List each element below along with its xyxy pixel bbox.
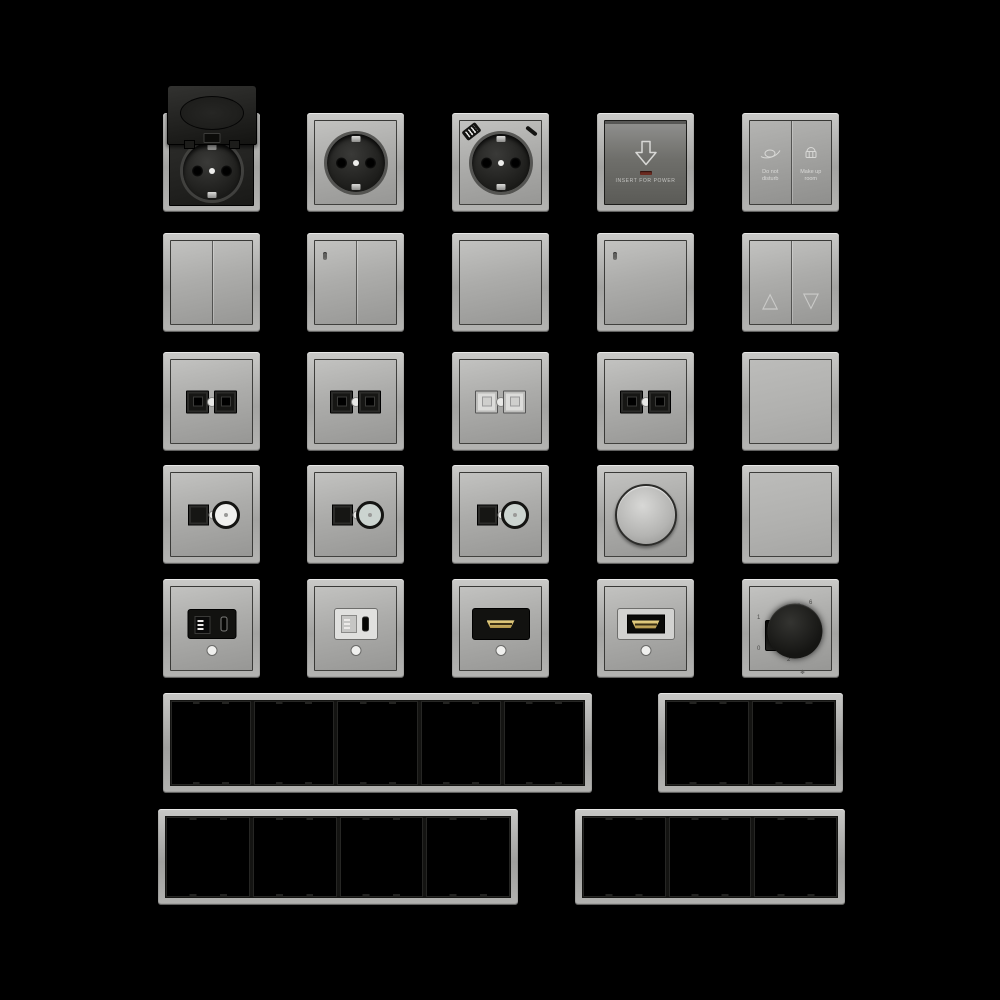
module-rotary-dimmer[interactable]	[597, 465, 694, 564]
lid-hinge-left	[184, 140, 195, 149]
data-port-right[interactable]	[503, 390, 526, 413]
module-rocker-1-gang-led[interactable]	[597, 233, 694, 332]
frame-openings	[582, 816, 838, 898]
usb-charger-insert	[334, 608, 378, 640]
data-port[interactable]	[332, 504, 353, 525]
socket-plate	[314, 586, 397, 671]
coax-connector[interactable]	[356, 501, 384, 529]
earth-clip-top	[496, 136, 505, 142]
frame-opening	[669, 817, 752, 897]
frame-opening	[171, 701, 251, 785]
make-up-room-button[interactable]: Make up room	[791, 121, 832, 204]
slider-scale-off: 0	[757, 646, 760, 652]
frame-opening	[754, 817, 837, 897]
indicator-led	[323, 252, 327, 260]
frame-opening	[166, 817, 250, 897]
fixing-screw	[206, 645, 217, 656]
usb-c-port[interactable]	[362, 617, 369, 632]
socket-plate	[170, 586, 253, 671]
module-blind-switch[interactable]: △ ▽	[742, 233, 839, 332]
frame-opening	[666, 701, 749, 785]
frame-opening	[504, 701, 584, 785]
usb-a-port[interactable]	[341, 615, 357, 633]
socket-pin-hole-right	[510, 157, 521, 168]
socket-plate	[604, 359, 687, 444]
frame-openings	[665, 700, 836, 786]
socket-outlet[interactable]	[327, 134, 385, 192]
earth-clip-top	[351, 136, 360, 142]
module-data-socket-black-1[interactable]	[163, 352, 260, 451]
rocker-divider	[356, 241, 357, 324]
module-tv-data-socket-3[interactable]	[452, 465, 549, 564]
socket-plate	[459, 359, 542, 444]
rocker-surface[interactable]	[604, 240, 687, 325]
socket-lid-open[interactable]	[167, 85, 257, 145]
frame-opening	[426, 817, 510, 897]
rocker-surface[interactable]	[749, 359, 832, 444]
lid-hinge-right	[229, 140, 240, 149]
fixing-screw	[640, 645, 651, 656]
module-tv-data-socket-1[interactable]	[163, 465, 260, 564]
make-up-room-label: Make up room	[791, 169, 832, 183]
socket-outlet[interactable]	[183, 142, 241, 200]
module-rocker-1-gang[interactable]	[452, 233, 549, 332]
lid-latch	[204, 133, 221, 143]
socket-pin-hole-left	[481, 157, 492, 168]
frost-mode-icon: ❄	[800, 669, 805, 676]
socket-pin-hole-right	[221, 166, 232, 177]
status-led	[640, 171, 652, 175]
rocker-surface[interactable]	[459, 240, 542, 325]
frame-opening	[421, 701, 501, 785]
earth-clip-top	[207, 144, 216, 150]
module-hotel-service-switch[interactable]: Do not disturb Make up room	[742, 113, 839, 212]
hdmi-port[interactable]	[487, 620, 515, 628]
frame-opening	[254, 701, 334, 785]
socket-center-screw	[498, 160, 504, 166]
socket-pin-hole-left	[192, 166, 203, 177]
module-hdmi-socket-white[interactable]	[597, 579, 694, 678]
frame-opening	[340, 817, 424, 897]
make-up-room-icon	[803, 145, 819, 166]
module-schuko-socket-usb[interactable]	[452, 113, 549, 212]
data-port[interactable]	[188, 504, 209, 525]
socket-plate	[459, 586, 542, 671]
earth-clip-bottom	[496, 184, 505, 190]
socket-plate	[459, 472, 542, 557]
hdmi-recess	[627, 615, 665, 634]
frame-openings	[170, 700, 585, 786]
frame-openings	[165, 816, 511, 898]
socket-pin-hole-right	[365, 157, 376, 168]
module-key-card-switch[interactable]: INSERT FOR POWER	[597, 113, 694, 212]
coax-connector[interactable]	[212, 501, 240, 529]
dial-scale-6: 6	[809, 600, 812, 606]
card-slot-face[interactable]: INSERT FOR POWER	[604, 120, 687, 205]
frame-opening	[752, 701, 835, 785]
socket-plate	[314, 472, 397, 557]
indicator-led	[613, 252, 617, 260]
frame-3-gang[interactable]	[575, 809, 845, 905]
earth-clip-bottom	[351, 184, 360, 190]
insert-card-arrow-icon	[629, 138, 663, 173]
socket-pin-hole-left	[336, 157, 347, 168]
do-not-disturb-button[interactable]: Do not disturb	[750, 121, 791, 204]
frame-opening	[253, 817, 337, 897]
frame-2-gang[interactable]	[658, 693, 843, 793]
do-not-disturb-label: Do not disturb	[750, 169, 791, 183]
data-port-right[interactable]	[214, 390, 237, 413]
hdmi-insert	[617, 608, 675, 640]
fixing-screw	[495, 645, 506, 656]
module-tv-data-socket-2[interactable]	[307, 465, 404, 564]
data-port[interactable]	[477, 504, 498, 525]
rocker-surface: △ ▽	[749, 240, 832, 325]
module-rocker-1-gang-plain[interactable]	[742, 352, 839, 451]
thermostat-knob[interactable]	[768, 603, 823, 658]
rocker-surface[interactable]	[170, 240, 253, 325]
slider-scale-on: 1	[757, 615, 760, 621]
socket-center-screw	[209, 168, 215, 174]
data-port-right[interactable]	[358, 390, 381, 413]
hdmi-insert	[472, 608, 530, 640]
lid-seal	[180, 96, 244, 130]
module-data-socket-black-2[interactable]	[307, 352, 404, 451]
module-schuko-socket[interactable]	[307, 113, 404, 212]
module-blank-cover[interactable]	[742, 465, 839, 564]
thermostat-plate: 1 0 6 5 4 3 2 ❄	[749, 586, 832, 671]
usb-c-port[interactable]	[220, 617, 227, 632]
switch-plate: Do not disturb Make up room	[749, 120, 832, 205]
fixing-screw	[350, 645, 361, 656]
socket-plate	[170, 359, 253, 444]
blind-down-button[interactable]: ▽	[803, 290, 819, 311]
card-switch-label: INSERT FOR POWER	[605, 178, 686, 184]
do-not-disturb-icon	[759, 146, 781, 165]
rocker-divider	[212, 241, 213, 324]
usb-a-port[interactable]	[194, 616, 210, 634]
module-hdmi-socket-black[interactable]	[452, 579, 549, 678]
frame-4-gang[interactable]	[158, 809, 518, 905]
socket-outlet[interactable]	[472, 134, 530, 192]
frame-opening	[337, 701, 417, 785]
earth-clip-bottom	[207, 192, 216, 198]
module-usb-charger-white[interactable]	[307, 579, 404, 678]
module-socket-hinged-lid[interactable]	[163, 113, 260, 212]
module-thermostat[interactable]: 1 0 6 5 4 3 2 ❄	[742, 579, 839, 678]
usb-charger-insert	[187, 609, 236, 639]
module-usb-charger-black[interactable]	[163, 579, 260, 678]
socket-plate	[604, 586, 687, 671]
frame-opening	[583, 817, 666, 897]
socket-plate	[170, 472, 253, 557]
module-data-socket-black-3[interactable]	[597, 352, 694, 451]
blank-plate	[749, 472, 832, 557]
socket-center-screw	[353, 160, 359, 166]
frame-5-gang[interactable]	[163, 693, 592, 793]
module-rocker-2-gang[interactable]	[163, 233, 260, 332]
data-port-right[interactable]	[648, 390, 671, 413]
coax-connector[interactable]	[501, 501, 529, 529]
hdmi-port[interactable]	[632, 620, 660, 628]
rocker-surface[interactable]	[314, 240, 397, 325]
rocker-divider	[791, 241, 792, 324]
blind-up-button[interactable]: △	[762, 290, 778, 311]
module-rocker-2-gang-led[interactable]	[307, 233, 404, 332]
dimmer-knob[interactable]	[615, 484, 677, 546]
socket-plate	[314, 359, 397, 444]
module-data-socket-white[interactable]	[452, 352, 549, 451]
